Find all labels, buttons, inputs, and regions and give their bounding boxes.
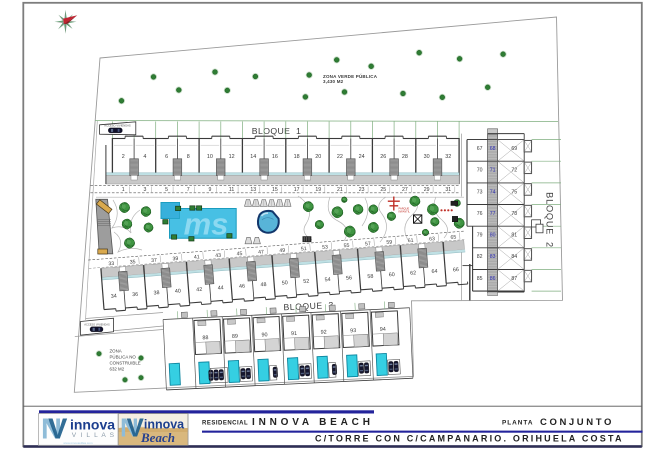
svg-text:61: 61 (408, 238, 414, 244)
svg-text:14: 14 (250, 154, 256, 160)
svg-text:80: 80 (490, 233, 496, 239)
svg-text:5: 5 (165, 187, 168, 193)
svg-text:52: 52 (303, 279, 309, 285)
svg-text:7: 7 (187, 187, 190, 193)
svg-text:49: 49 (279, 248, 285, 254)
svg-text:39: 39 (172, 256, 178, 262)
svg-text:30: 30 (424, 154, 430, 160)
svg-text:70: 70 (477, 168, 483, 174)
svg-text:57: 57 (365, 241, 371, 247)
svg-text:58: 58 (367, 274, 373, 280)
svg-text:PLANTA: PLANTA (502, 419, 533, 426)
svg-text:40: 40 (175, 288, 181, 294)
svg-text:9: 9 (208, 187, 211, 193)
svg-text:23: 23 (359, 187, 365, 193)
svg-text:35: 35 (130, 259, 136, 265)
svg-text:41: 41 (194, 254, 200, 260)
svg-text:632 M2: 632 M2 (110, 367, 125, 372)
svg-text:ACCESO VIVIENDAS: ACCESO VIVIENDAS (104, 123, 131, 127)
svg-text:ACCESO VIVIENDAS: ACCESO VIVIENDAS (84, 322, 110, 326)
svg-text:76: 76 (477, 211, 483, 217)
svg-text:46: 46 (239, 284, 245, 290)
svg-text:16: 16 (272, 154, 278, 160)
svg-text:34: 34 (111, 293, 117, 299)
svg-text:33: 33 (108, 261, 114, 267)
svg-text:82: 82 (477, 254, 483, 260)
svg-text:66: 66 (453, 267, 459, 273)
svg-text:CONJUNTO: CONJUNTO (540, 417, 614, 428)
svg-text:17: 17 (294, 187, 300, 193)
svg-text:8: 8 (187, 154, 190, 160)
svg-text:PÚBLICA NO: PÚBLICA NO (110, 355, 137, 360)
svg-text:38: 38 (153, 290, 159, 296)
svg-text:12: 12 (229, 154, 235, 160)
svg-text:62: 62 (410, 270, 416, 276)
svg-text:89: 89 (232, 334, 238, 340)
svg-text:3,430 M2: 3,430 M2 (323, 79, 344, 84)
svg-text:24: 24 (359, 154, 365, 160)
svg-text:42: 42 (196, 287, 202, 293)
svg-text:innova: innova (70, 417, 115, 433)
svg-text:32: 32 (445, 154, 451, 160)
svg-text:26: 26 (380, 154, 386, 160)
svg-text:22: 22 (337, 154, 343, 160)
svg-text:27: 27 (402, 187, 408, 193)
svg-text:94: 94 (380, 327, 386, 333)
svg-text:78: 78 (511, 211, 517, 217)
svg-text:54: 54 (324, 277, 330, 283)
svg-text:6: 6 (165, 154, 168, 160)
svg-text:71: 71 (490, 168, 496, 174)
svg-text:60: 60 (389, 272, 395, 278)
svg-text:36: 36 (132, 292, 138, 298)
svg-text:59: 59 (386, 239, 392, 245)
svg-text:81: 81 (511, 233, 517, 239)
svg-text:75: 75 (511, 189, 517, 195)
svg-text:BLOQUE 1: BLOQUE 1 (252, 126, 301, 136)
svg-text:28: 28 (402, 154, 408, 160)
svg-text:67: 67 (477, 146, 483, 152)
svg-text:50: 50 (282, 280, 288, 286)
svg-text:INFANTIL: INFANTIL (399, 209, 411, 213)
svg-text:63: 63 (429, 236, 435, 242)
svg-text:53: 53 (322, 244, 328, 250)
svg-text:BLOQUE 2: BLOQUE 2 (545, 192, 555, 248)
svg-text:91: 91 (291, 331, 297, 337)
svg-text:74: 74 (490, 189, 496, 195)
svg-text:69: 69 (511, 146, 517, 152)
svg-text:CONSTRUIBLE: CONSTRUIBLE (110, 361, 141, 366)
svg-text:ms: ms (184, 207, 229, 242)
svg-text:64: 64 (431, 269, 437, 275)
svg-text:37: 37 (151, 258, 157, 264)
svg-text:21: 21 (337, 187, 343, 193)
svg-text:V I L L A S: V I L L A S (72, 432, 116, 439)
svg-text:3: 3 (143, 187, 146, 193)
svg-text:56: 56 (346, 275, 352, 281)
svg-text:86: 86 (490, 276, 496, 282)
svg-text:43: 43 (215, 253, 221, 259)
svg-text:20: 20 (315, 154, 321, 160)
svg-text:44: 44 (218, 285, 224, 291)
svg-text:RESIDENCIAL: RESIDENCIAL (202, 420, 248, 426)
svg-text:C/TORRE CON C/CAMPANARIO. ORIH: C/TORRE CON C/CAMPANARIO. ORIHUELA COSTA (315, 434, 624, 444)
svg-text:90: 90 (261, 332, 267, 338)
svg-text:87: 87 (511, 276, 517, 282)
svg-text:77: 77 (490, 211, 496, 217)
svg-text:47: 47 (258, 249, 264, 255)
svg-text:85: 85 (477, 276, 483, 282)
svg-text:ZONA: ZONA (110, 349, 122, 354)
svg-text:4: 4 (143, 154, 146, 160)
svg-text:65: 65 (450, 235, 456, 241)
svg-text:15: 15 (272, 187, 278, 193)
svg-text:25: 25 (380, 187, 386, 193)
svg-text:48: 48 (260, 282, 266, 288)
svg-text:INNOVA BEACH: INNOVA BEACH (252, 417, 374, 428)
svg-text:88: 88 (202, 335, 208, 341)
svg-text:Beach: Beach (140, 430, 175, 445)
svg-text:83: 83 (490, 254, 496, 260)
svg-text:29: 29 (424, 187, 430, 193)
svg-text:93: 93 (350, 328, 356, 334)
svg-text:11: 11 (229, 187, 234, 193)
svg-text:92: 92 (321, 329, 327, 335)
svg-text:2: 2 (122, 154, 125, 160)
svg-text:31: 31 (445, 187, 451, 193)
svg-text:13: 13 (250, 187, 256, 193)
svg-text:55: 55 (343, 243, 349, 249)
svg-text:84: 84 (511, 254, 517, 260)
svg-text:www.innovavillas.com: www.innovavillas.com (63, 441, 93, 445)
svg-text:51: 51 (301, 246, 307, 252)
svg-text:73: 73 (477, 189, 483, 195)
svg-text:19: 19 (315, 187, 321, 193)
svg-text:45: 45 (236, 251, 242, 257)
svg-text:68: 68 (490, 146, 496, 152)
svg-text:18: 18 (294, 154, 300, 160)
svg-text:79: 79 (477, 233, 483, 239)
svg-text:10: 10 (207, 154, 213, 160)
svg-text:1: 1 (122, 187, 125, 193)
svg-text:72: 72 (511, 168, 517, 174)
